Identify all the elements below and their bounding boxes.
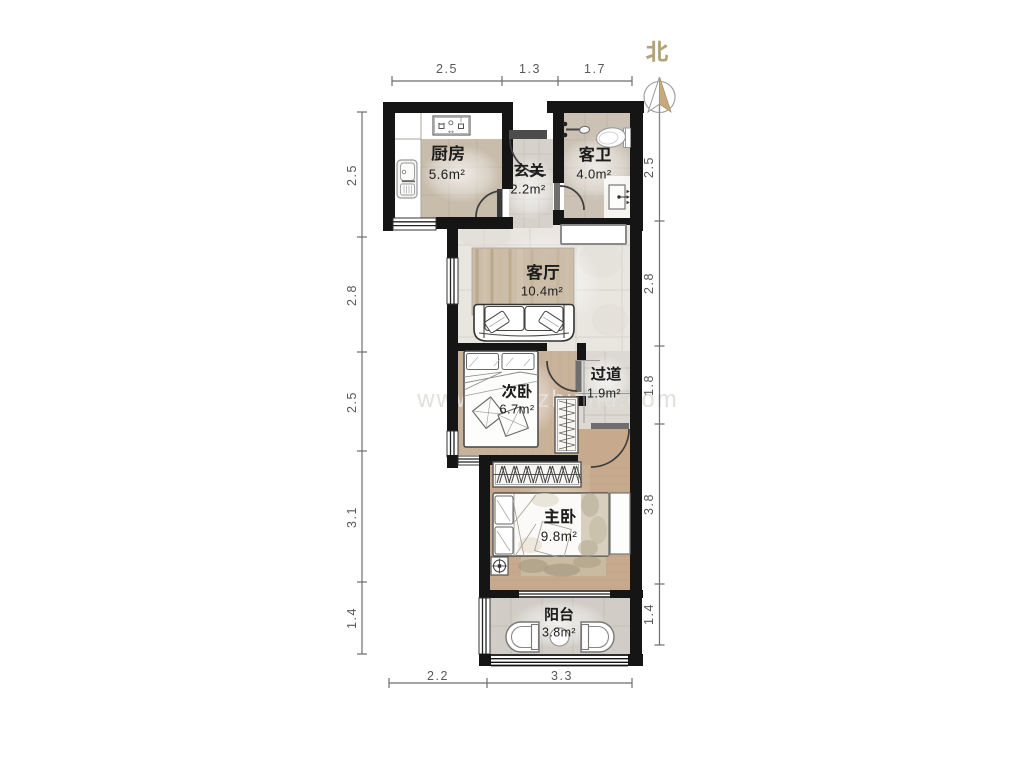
- svg-text:9.8m²: 9.8m²: [541, 529, 578, 544]
- svg-text:3.3: 3.3: [551, 669, 573, 683]
- svg-text:2.5: 2.5: [345, 391, 359, 413]
- svg-text:1.4: 1.4: [642, 603, 656, 625]
- svg-text:2.5: 2.5: [436, 62, 458, 76]
- svg-text:2.2: 2.2: [427, 669, 449, 683]
- svg-text:3.1: 3.1: [345, 506, 359, 528]
- svg-text:2.2m²: 2.2m²: [510, 182, 546, 197]
- svg-text:6.7m²: 6.7m²: [499, 402, 535, 417]
- svg-text:2.8: 2.8: [642, 272, 656, 294]
- svg-text:2.5: 2.5: [345, 164, 359, 186]
- svg-text:3.8: 3.8: [642, 493, 656, 515]
- svg-text:5.6m²: 5.6m²: [429, 167, 466, 182]
- svg-text:1.7: 1.7: [584, 62, 606, 76]
- svg-text:10.4m²: 10.4m²: [521, 284, 564, 299]
- svg-text:1.8: 1.8: [642, 374, 656, 396]
- svg-text:1.3: 1.3: [519, 62, 541, 76]
- svg-text:2.5: 2.5: [642, 156, 656, 178]
- svg-text:2.8: 2.8: [345, 284, 359, 306]
- svg-text:1.9m²: 1.9m²: [587, 387, 621, 401]
- svg-text:4.0m²: 4.0m²: [576, 167, 612, 182]
- svg-text:3.8m²: 3.8m²: [542, 626, 576, 640]
- svg-text:1.4: 1.4: [345, 607, 359, 629]
